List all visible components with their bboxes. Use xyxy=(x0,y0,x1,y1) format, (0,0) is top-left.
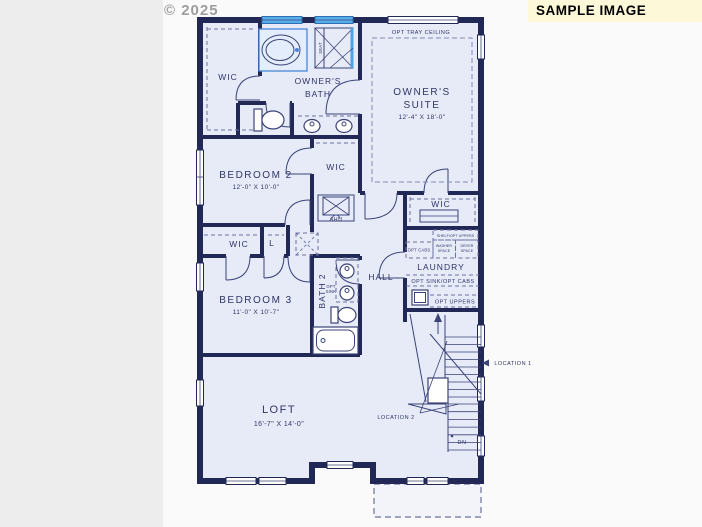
label-opt-cabs: OPT CABS xyxy=(408,248,431,253)
window-notch xyxy=(327,462,353,469)
label-washer-1: WASHER xyxy=(436,244,453,248)
window-suite xyxy=(388,17,458,24)
room-label-bedroom2: BEDROOM 2 xyxy=(219,170,293,181)
room-label-owners-wic: WIC xyxy=(218,72,238,82)
floor-plan-drawing: SEAT xyxy=(0,0,702,527)
room-label-ahu: AHU xyxy=(329,217,342,223)
label-dryer-2: SPACE xyxy=(461,249,474,253)
room-label-owners-bath-2: BATH xyxy=(305,89,331,99)
window-bottom-4 xyxy=(427,478,448,485)
room-label-bedroom3: BEDROOM 3 xyxy=(219,295,293,306)
window-bottom-3 xyxy=(407,478,424,485)
label-location2: LOCATION 2 xyxy=(377,415,414,421)
dims-bedroom3: 11'-0" X 10'-7" xyxy=(233,309,280,316)
window-right-1 xyxy=(478,35,485,59)
room-label-bedroom2-wic: WIC xyxy=(326,162,346,172)
window-left-loft xyxy=(197,380,204,406)
floor-plan-page: © 2025 SAMPLE IMAGE xyxy=(0,0,702,527)
room-label-closet-linen: L xyxy=(269,238,275,248)
label-opt-uppers: OPT UPPERS xyxy=(435,300,475,306)
label-washer-2: SPACE xyxy=(438,249,451,253)
room-label-laundry: LAUNDRY xyxy=(417,262,464,272)
bathtub-icon xyxy=(259,29,307,71)
dims-loft: 16'-7" X 14'-0" xyxy=(254,421,304,428)
tub-bath2-icon xyxy=(313,327,358,354)
label-shelf-opt-uppers: SHELF/OPT UPPERS xyxy=(437,234,475,238)
dims-bedroom2: 12'-0" X 10'-0" xyxy=(232,184,279,191)
room-label-hall: HALL xyxy=(368,272,393,282)
window-bottom-2 xyxy=(259,478,286,485)
window-bottom-1 xyxy=(226,478,256,485)
window-right-4 xyxy=(478,436,485,456)
toilet-owners-icon xyxy=(254,109,284,131)
room-label-owners-suite-1: OWNER'S xyxy=(393,87,450,98)
room-label-closet-wic: WIC xyxy=(229,239,249,249)
room-label-owners-bath-1: OWNER'S xyxy=(295,76,342,86)
label-opt-sink-opt-cabs: OPT SINK/OPT CABS xyxy=(411,279,474,285)
label-opt-sink-2: SINK xyxy=(326,289,337,294)
toilet-bath2-icon xyxy=(331,307,356,323)
window-blue-tub xyxy=(262,17,302,24)
room-label-owners-wic2: WIC xyxy=(431,199,451,209)
room-label-owners-suite-2: SUITE xyxy=(404,100,441,111)
room-label-loft: LOFT xyxy=(262,404,296,416)
label-dryer-1: DRYER xyxy=(460,244,473,248)
window-blue-shower xyxy=(315,17,353,24)
dims-owners-suite: 12'-4" X 18'-0" xyxy=(398,114,445,121)
window-left-bedroom3 xyxy=(197,263,204,291)
label-dn: DN xyxy=(458,440,467,446)
label-location1: LOCATION 1 xyxy=(494,361,531,367)
shower-seat-label: SEAT xyxy=(318,42,323,54)
optional-area-outline xyxy=(374,484,481,517)
window-left-bedroom2 xyxy=(197,150,204,205)
window-right-2 xyxy=(478,325,485,347)
label-opt-tray-ceiling: OPT TRAY CEILING xyxy=(392,30,450,36)
